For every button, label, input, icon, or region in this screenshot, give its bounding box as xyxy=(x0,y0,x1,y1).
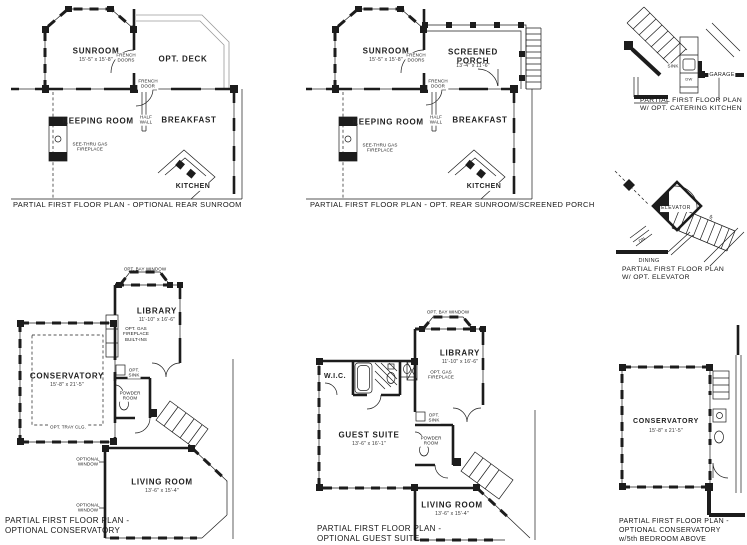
room-label-kitchen: KITCHEN xyxy=(466,183,503,191)
label-powder-room: POWDER ROOM xyxy=(119,391,142,402)
label-half-wall: HALF WALL xyxy=(429,115,444,126)
label-optional-window-2: OPTIONAL WINDOW xyxy=(76,503,100,514)
room-label-kitchen: KITCHEN xyxy=(175,183,212,191)
room-label-keeping-room: KEEPING ROOM xyxy=(62,116,134,125)
label-optional-window-1: OPTIONAL WINDOW xyxy=(76,457,100,468)
label-opt-bay-window: OPT. BAY WINDOW xyxy=(427,309,469,314)
label-opt-tray-ceiling: OPT. TRAY CLG. xyxy=(49,424,87,429)
plan-optional-conservatory: OPT. BAY WINDOW LIBRARY 11'-10" x 16'-6"… xyxy=(2,263,237,543)
label-french-door: FRENCH DOOR xyxy=(427,79,448,90)
plan-elevator-drawing xyxy=(612,168,747,280)
room-label-library: LIBRARY xyxy=(440,348,480,357)
label-opt-sink: OPT. SINK xyxy=(428,413,441,424)
label-half-wall: HALF WALL xyxy=(139,115,154,126)
label-opt-bay-window: OPT. BAY WINDOW xyxy=(124,266,166,271)
floor-plan-sheet: SUNROOM 15'-5" x 15'-8" FRENCH DOORS OPT… xyxy=(0,0,747,545)
room-dims-sunroom: 15'-5" x 15'-8" xyxy=(369,58,403,64)
room-label-keeping-room: KEEPING ROOM xyxy=(352,117,424,126)
room-label-elevator: ELEVATOR xyxy=(660,206,692,212)
label-french-doors: FRENCH DOORS xyxy=(405,53,426,64)
label-french-doors: FRENCH DOORS xyxy=(115,53,136,64)
label-opt-gas-fireplace: OPT. GAS FIREPLACE xyxy=(427,370,455,381)
caption-catering-kitchen: PARTIAL FIRST FLOOR PLAN W/ OPT. CATERIN… xyxy=(640,97,742,114)
room-dims-living-room: 13'-6" x 15'-4" xyxy=(145,489,179,495)
room-label-guest-suite: GUEST SUITE xyxy=(338,430,399,439)
plan-conservatory-5th-bedroom-drawing xyxy=(605,325,747,545)
plan-sunroom-screened-porch: SUNROOM 15'-5" x 15'-8" FRENCH DOORS SCR… xyxy=(300,3,545,215)
room-label-garage: GARAGE xyxy=(708,72,735,78)
room-dims-sunroom: 15'-5" x 15'-8" xyxy=(79,58,113,64)
plan-conservatory-5th-bedroom: CONSERVATORY 15'-8" x 21'-5" PARTIAL FIR… xyxy=(605,325,747,545)
label-opt-gas-fireplace-builtins: OPT. GAS FIREPLACE BUILT-INS xyxy=(122,326,150,342)
caption-conservatory-5th-bedroom: PARTIAL FIRST FLOOR PLAN - OPTIONAL CONS… xyxy=(619,518,729,544)
room-label-breakfast: BREAKFAST xyxy=(452,115,507,124)
plan-optional-rear-sunroom: SUNROOM 15'-5" x 15'-8" FRENCH DOORS OPT… xyxy=(5,3,245,215)
caption-sunroom-screened-porch: PARTIAL FIRST FLOOR PLAN - OPT. REAR SUN… xyxy=(310,200,595,209)
plan-optional-guest-suite: OPT. BAY WINDOW LIBRARY 11'-10" x 16'-6"… xyxy=(305,300,540,545)
plan-optional-conservatory-drawing xyxy=(2,263,237,543)
room-label-library: LIBRARY xyxy=(137,306,177,315)
plan-elevator: ELEVATOR UP DN DINING PARTIAL FIRST FLOO… xyxy=(612,168,747,280)
label-dishwasher: DW xyxy=(685,78,692,83)
label-sink: SINK xyxy=(667,63,680,68)
room-dims-living-room: 13'-6" x 15'-4" xyxy=(435,512,469,518)
room-label-conservatory: CONSERVATORY xyxy=(633,418,699,426)
label-see-thru-gas-fireplace: SEE-THRU GAS FIREPLACE xyxy=(362,143,399,154)
room-dims-conservatory: 15'-8" x 21'-5" xyxy=(649,429,683,435)
room-dims-library: 11'-10" x 16'-6" xyxy=(139,318,175,324)
label-opt-sink: OPT. SINK xyxy=(128,368,141,379)
room-label-breakfast: BREAKFAST xyxy=(161,115,216,124)
room-label-opt-deck: OPT. DECK xyxy=(159,54,208,63)
label-see-thru-gas-fireplace: SEE-THRU GAS FIREPLACE xyxy=(72,142,109,153)
caption-elevator: PARTIAL FIRST FLOOR PLAN W/ OPT. ELEVATO… xyxy=(622,266,724,283)
caption-optional-guest-suite: PARTIAL FIRST FLOOR PLAN - OPTIONAL GUES… xyxy=(317,524,441,544)
room-label-conservatory: CONSERVATORY xyxy=(30,371,104,380)
room-label-wic: W.I.C. xyxy=(323,373,347,381)
room-dims-screened-porch: 13'-4" x 11'-6" xyxy=(456,64,489,70)
room-dims-guest-suite: 13'-6" x 16'-1" xyxy=(352,442,386,448)
room-label-sunroom: SUNROOM xyxy=(73,46,120,55)
label-powder-room: POWDER ROOM xyxy=(420,436,443,447)
room-label-living-room: LIVING ROOM xyxy=(421,500,482,509)
plan-sunroom-screened-porch-drawing xyxy=(300,3,545,215)
label-french-door: FRENCH DOOR xyxy=(137,79,158,90)
room-label-living-room: LIVING ROOM xyxy=(131,477,192,486)
room-label-dining: DINING xyxy=(638,258,659,264)
plan-catering-kitchen: SINK DW GARAGE PARTIAL FIRST FLOOR PLAN … xyxy=(622,5,747,115)
room-dims-library: 11'-10" x 16'-6" xyxy=(442,360,478,366)
room-dims-conservatory: 15'-8" x 21'-5" xyxy=(50,383,84,389)
caption-optional-rear-sunroom: PARTIAL FIRST FLOOR PLAN - OPTIONAL REAR… xyxy=(13,200,242,209)
caption-optional-conservatory: PARTIAL FIRST FLOOR PLAN - OPTIONAL CONS… xyxy=(5,516,129,536)
room-label-sunroom: SUNROOM xyxy=(363,46,410,55)
